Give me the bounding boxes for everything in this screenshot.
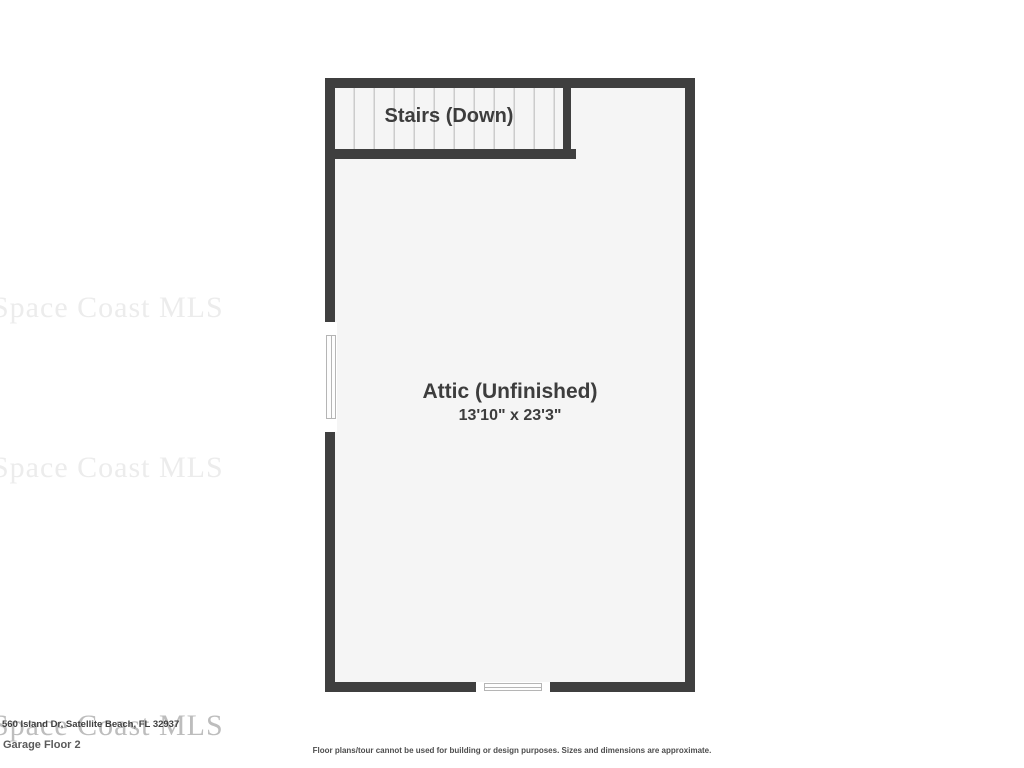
room-dimensions: 13'10" x 23'3" [335, 407, 685, 425]
disclaimer-text: Floor plans/tour cannot be used for buil… [0, 746, 1024, 755]
stairs-enclosure-wall-bottom [335, 149, 576, 159]
watermark-space-coast-mls: Space Coast MLS [0, 451, 224, 485]
floor-plan-page: Space Coast MLS Space Coast MLS Stairs (… [0, 0, 1024, 768]
stairs-label: Stairs (Down) [335, 105, 563, 128]
window-frame [484, 683, 542, 691]
floor-plan-outline: Stairs (Down) Attic (Unfinished) 13'10" … [325, 78, 695, 692]
room-label-block: Attic (Unfinished) 13'10" x 23'3" [335, 380, 685, 425]
window-frame [326, 335, 336, 419]
stairs-enclosure-wall-right [563, 88, 571, 149]
watermark-space-coast-mls: Space Coast MLS [0, 291, 224, 325]
window-symbol-left-wall [325, 322, 337, 432]
room-name: Attic (Unfinished) [335, 380, 685, 404]
property-address: 560 Island Dr, Satellite Beach, FL 32937 [2, 719, 179, 730]
window-symbol-bottom-wall [476, 682, 550, 692]
